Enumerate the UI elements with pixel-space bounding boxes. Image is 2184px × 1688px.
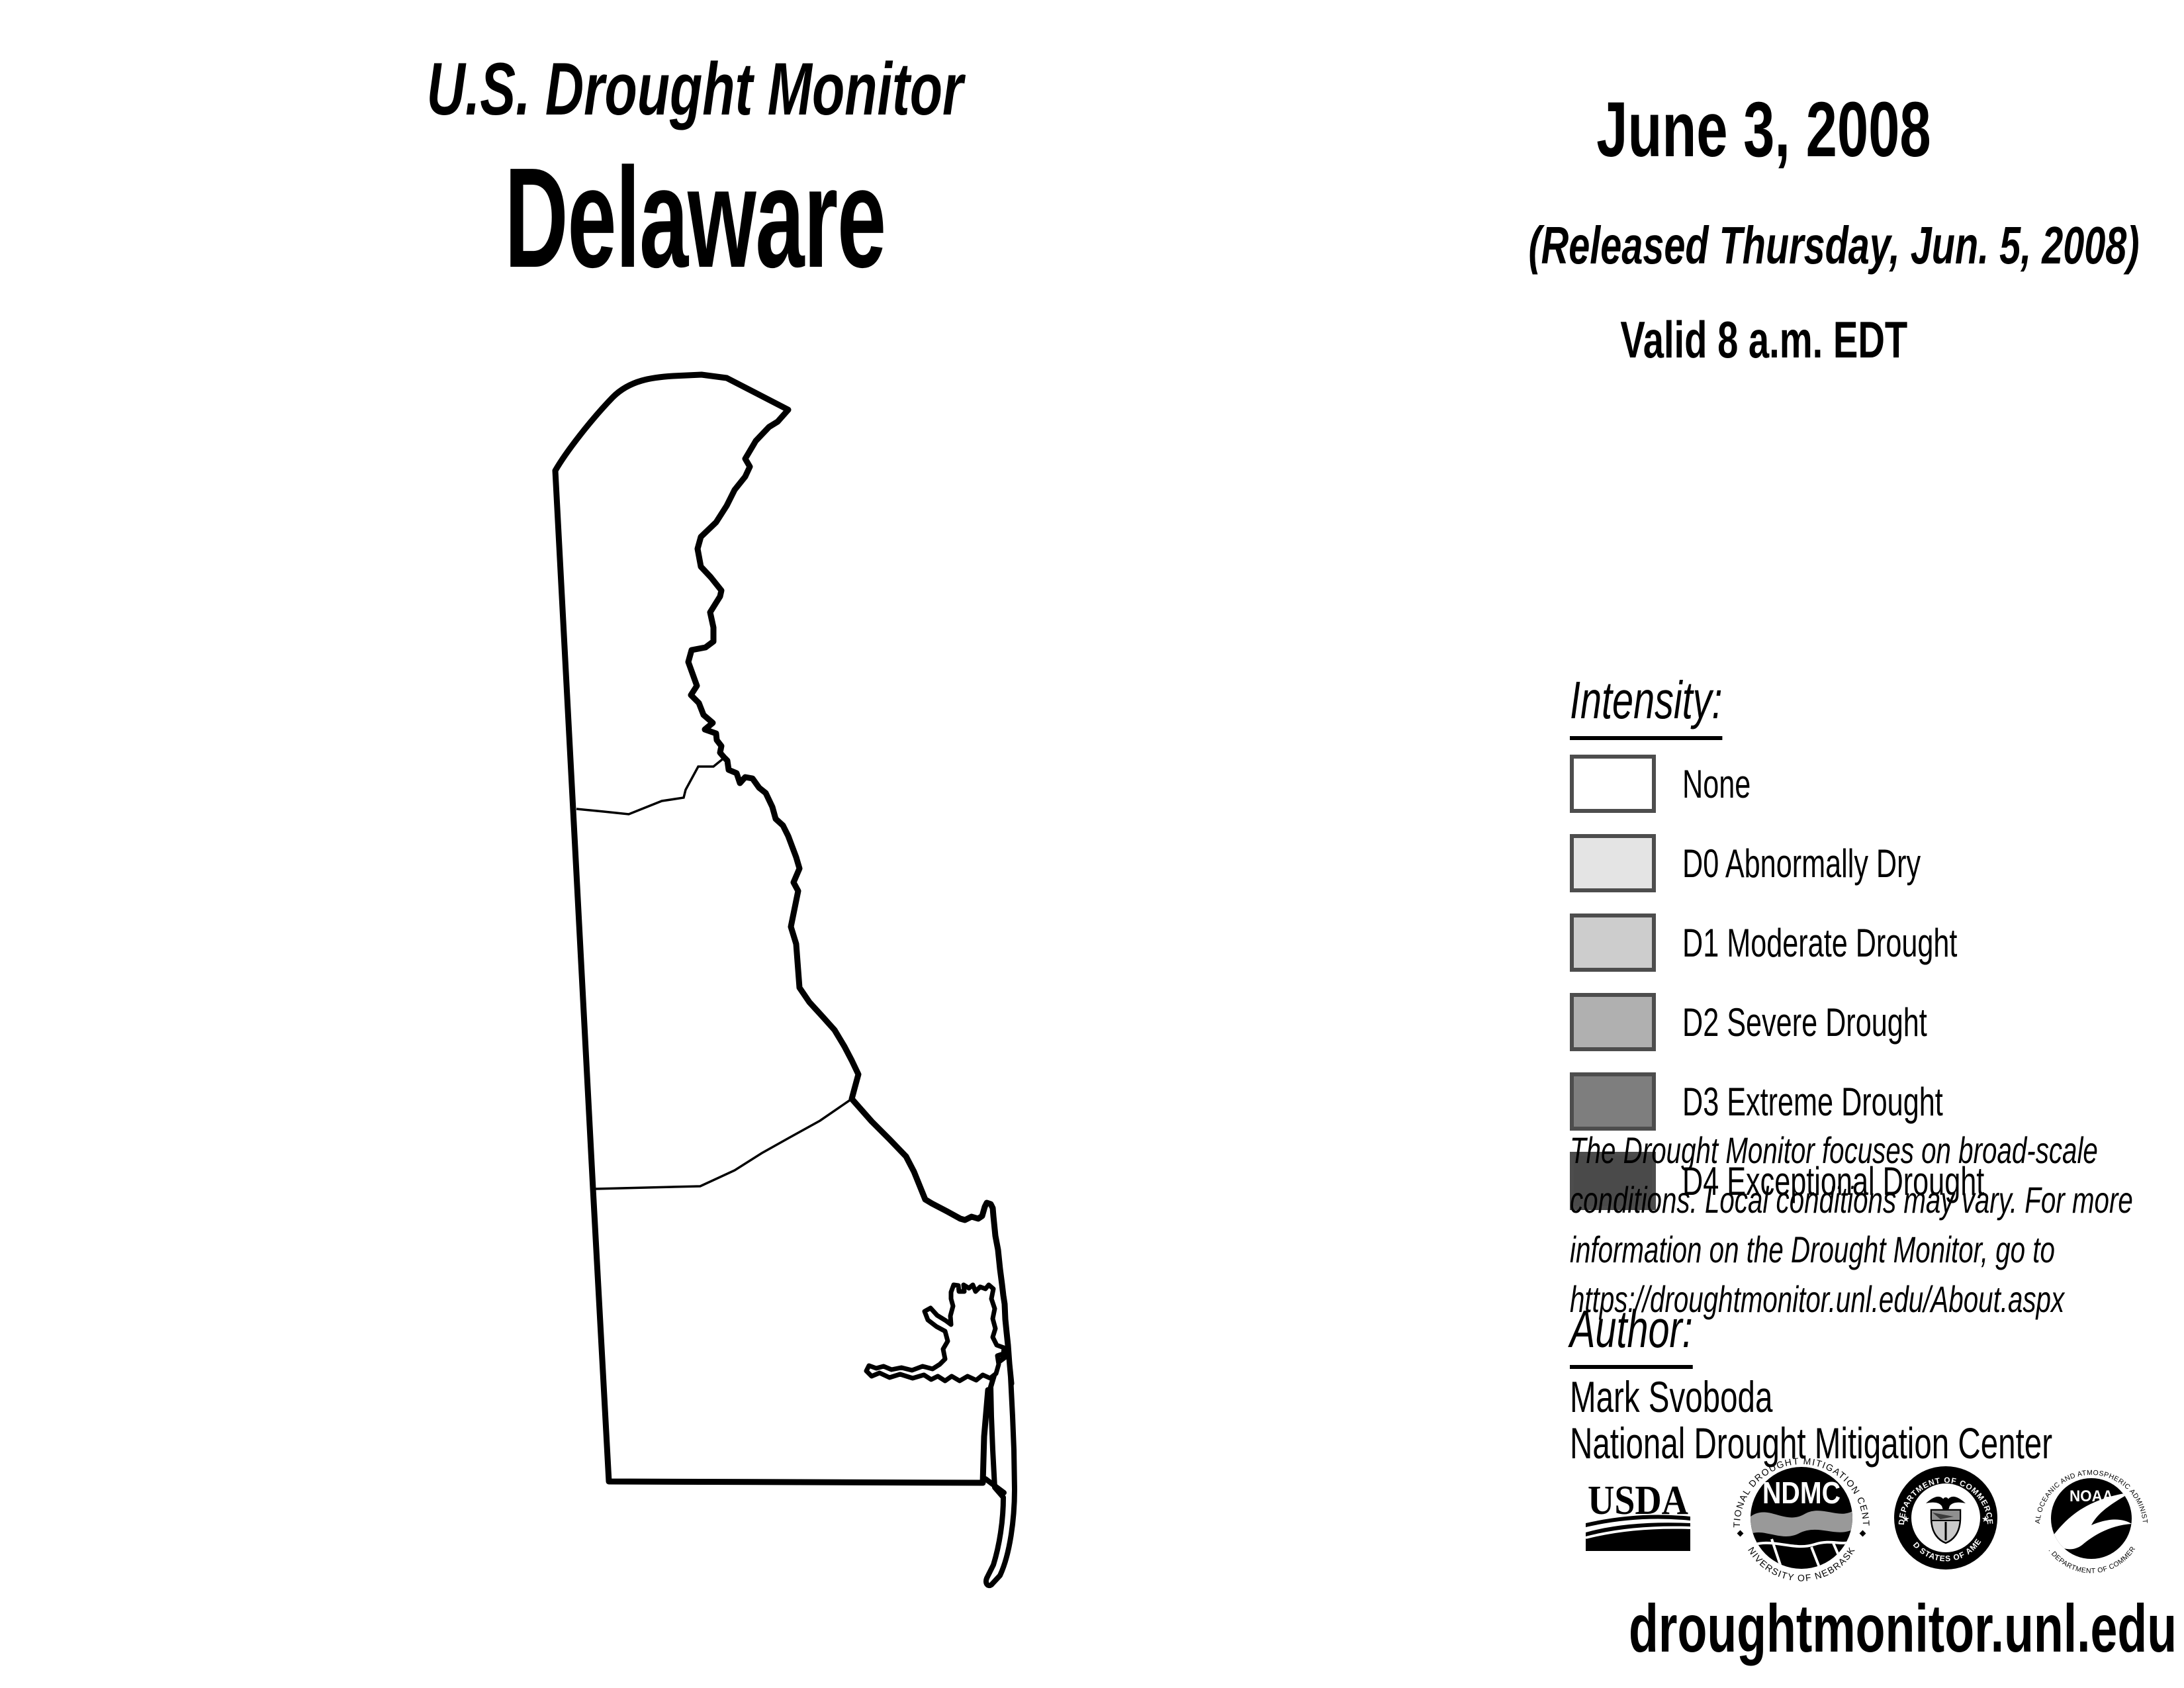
- usda-logo: USDA: [1582, 1479, 1694, 1554]
- legend-label-d1: D1 Moderate Drought: [1682, 920, 2064, 966]
- legend-swatch-none: [1570, 755, 1656, 813]
- legend-swatch-d2: [1570, 993, 1656, 1051]
- disclaimer-line-2: conditions. Local conditions may vary. F…: [1570, 1175, 2184, 1225]
- released-date-text: (Released Thursday, Jun. 5, 2008): [1528, 215, 2139, 276]
- author-heading: Author:: [1570, 1299, 1741, 1369]
- commerce-star-left: ★: [1902, 1514, 1910, 1524]
- valid-time: Valid 8 a.m. EDT: [1410, 310, 2118, 370]
- legend-label-none: None: [1682, 761, 1777, 808]
- legend-swatch-d3: [1570, 1072, 1656, 1131]
- website-url: droughtmonitor.unl.edu: [1522, 1590, 2184, 1667]
- ndmc-ring-diamond-left: [1737, 1530, 1744, 1537]
- legend-label-d2: D2 Severe Drought: [1682, 1000, 2023, 1046]
- ndmc-logo: NDMC NATIONAL DROUGHT MITIGATION CENTER …: [1731, 1447, 1872, 1589]
- page-title: U.S. Drought Monitor: [165, 46, 1224, 132]
- ndmc-logo-text: NDMC: [1762, 1476, 1841, 1510]
- region-title: Delaware: [165, 136, 1224, 300]
- commerce-star-right: ★: [1981, 1514, 1989, 1524]
- released-date: (Released Thursday, Jun. 5, 2008): [1410, 215, 2118, 276]
- map-date-text: June 3, 2008: [1596, 85, 1931, 175]
- disclaimer-line-1: The Drought Monitor focuses on broad-sca…: [1570, 1125, 2184, 1175]
- commerce-seal: DEPARTMENT OF COMMERCE UNITED STATES OF …: [1891, 1463, 2001, 1573]
- map-date: June 3, 2008: [1410, 85, 2118, 175]
- commerce-eagle-head: [1943, 1497, 1948, 1503]
- legend-heading-text: Intensity:: [1570, 670, 1723, 740]
- barrier-spit: [986, 1354, 1015, 1585]
- valid-time-text: Valid 8 a.m. EDT: [1620, 310, 1907, 370]
- legend-swatch-d0: [1570, 834, 1656, 892]
- drought-monitor-page: U.S. Drought Monitor Delaware June 3, 20…: [0, 0, 2184, 1688]
- page-title-text: U.S. Drought Monitor: [427, 46, 964, 132]
- region-title-text: Delaware: [504, 136, 885, 300]
- legend-swatch-d1: [1570, 914, 1656, 972]
- legend-label-d3: D3 Extreme Drought: [1682, 1079, 2044, 1125]
- disclaimer: The Drought Monitor focuses on broad-sca…: [1570, 1125, 2184, 1324]
- noaa-logo-text: NOAA: [2070, 1487, 2113, 1505]
- author-heading-text: Author:: [1570, 1299, 1693, 1369]
- ndmc-ring-diamond-right: [1860, 1530, 1866, 1537]
- noaa-logo: NOAA NATIONAL OCEANIC AND ATMOSPHERIC AD…: [2033, 1460, 2150, 1577]
- disclaimer-line-3: information on the Drought Monitor, go t…: [1570, 1225, 2184, 1274]
- author-name: Mark Svoboda: [1570, 1372, 1852, 1422]
- legend-label-d0: D0 Abnormally Dry: [1682, 841, 2013, 887]
- legend-heading: Intensity:: [1570, 670, 1782, 740]
